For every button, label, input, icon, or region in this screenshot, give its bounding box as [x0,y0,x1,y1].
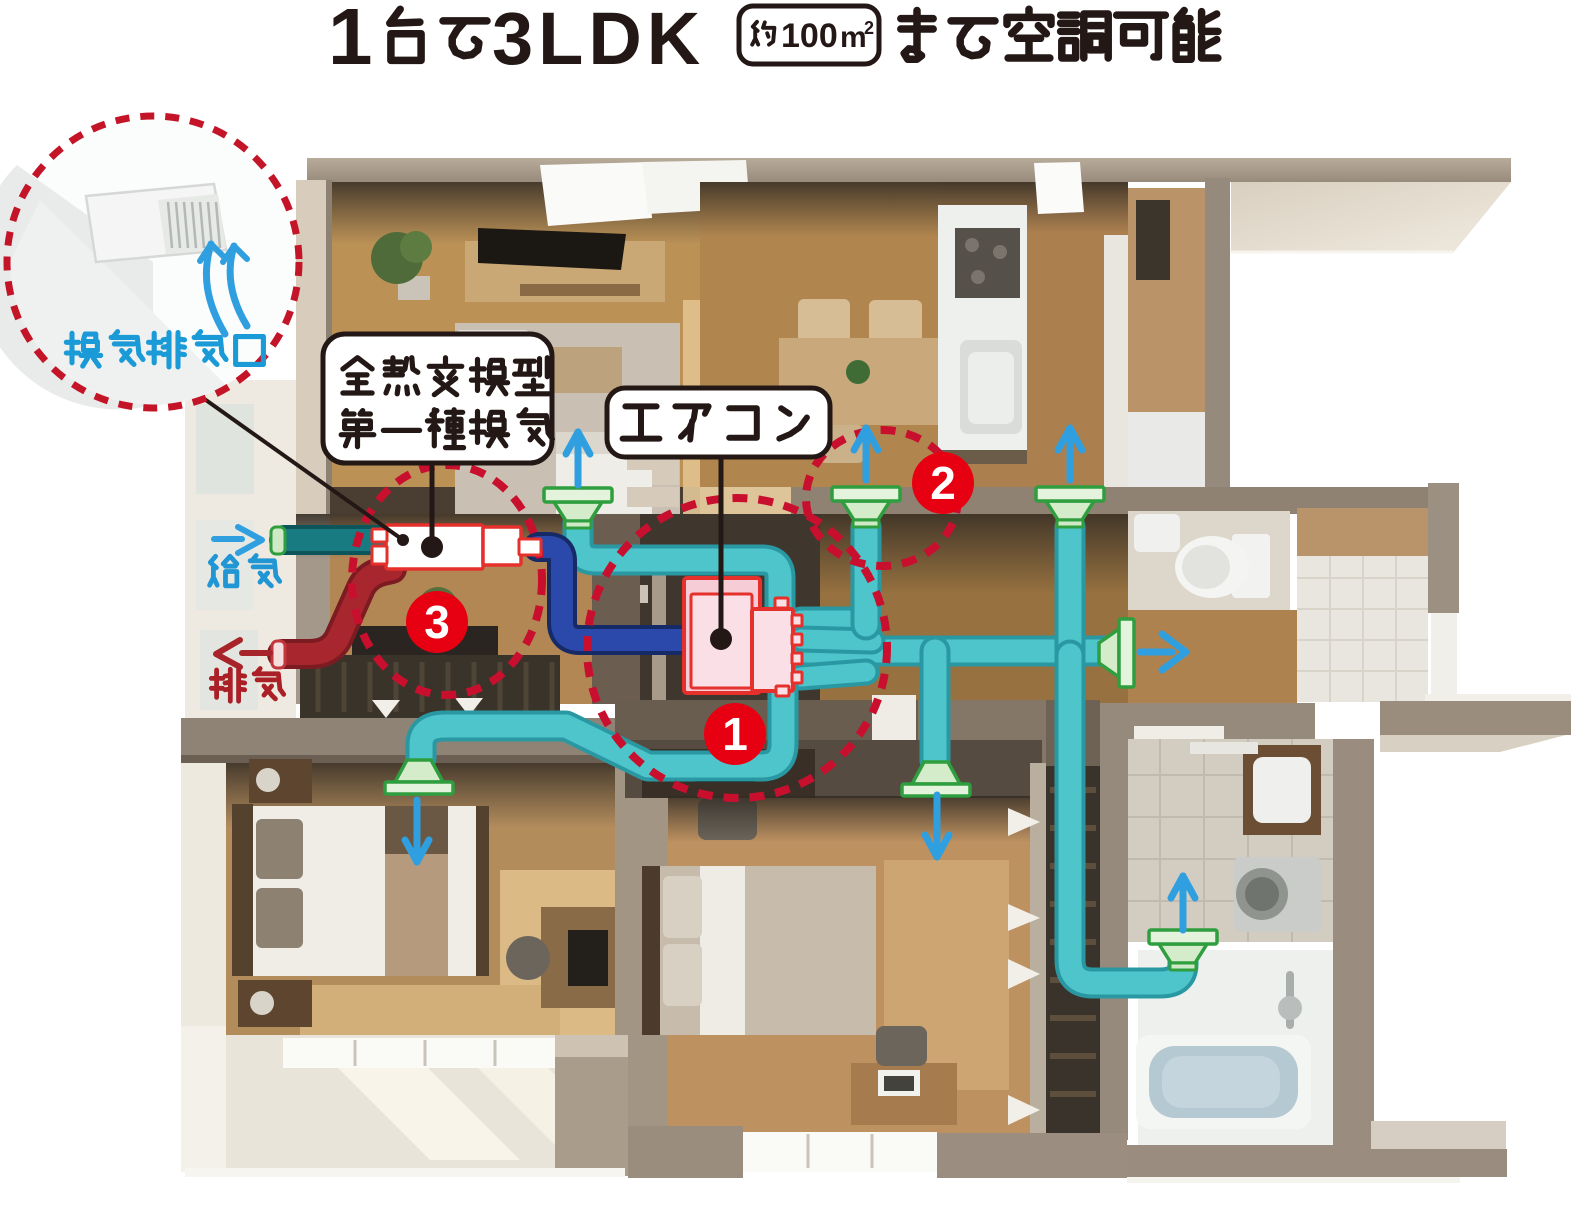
svg-text:100: 100 [781,17,838,55]
svg-text:m: m [840,21,867,54]
svg-text:3: 3 [424,596,450,648]
svg-text:2: 2 [930,457,956,509]
svg-text:1: 1 [722,708,748,760]
svg-text:2: 2 [864,18,874,38]
svg-text:3LDK: 3LDK [492,0,705,80]
svg-text:1: 1 [328,0,373,81]
